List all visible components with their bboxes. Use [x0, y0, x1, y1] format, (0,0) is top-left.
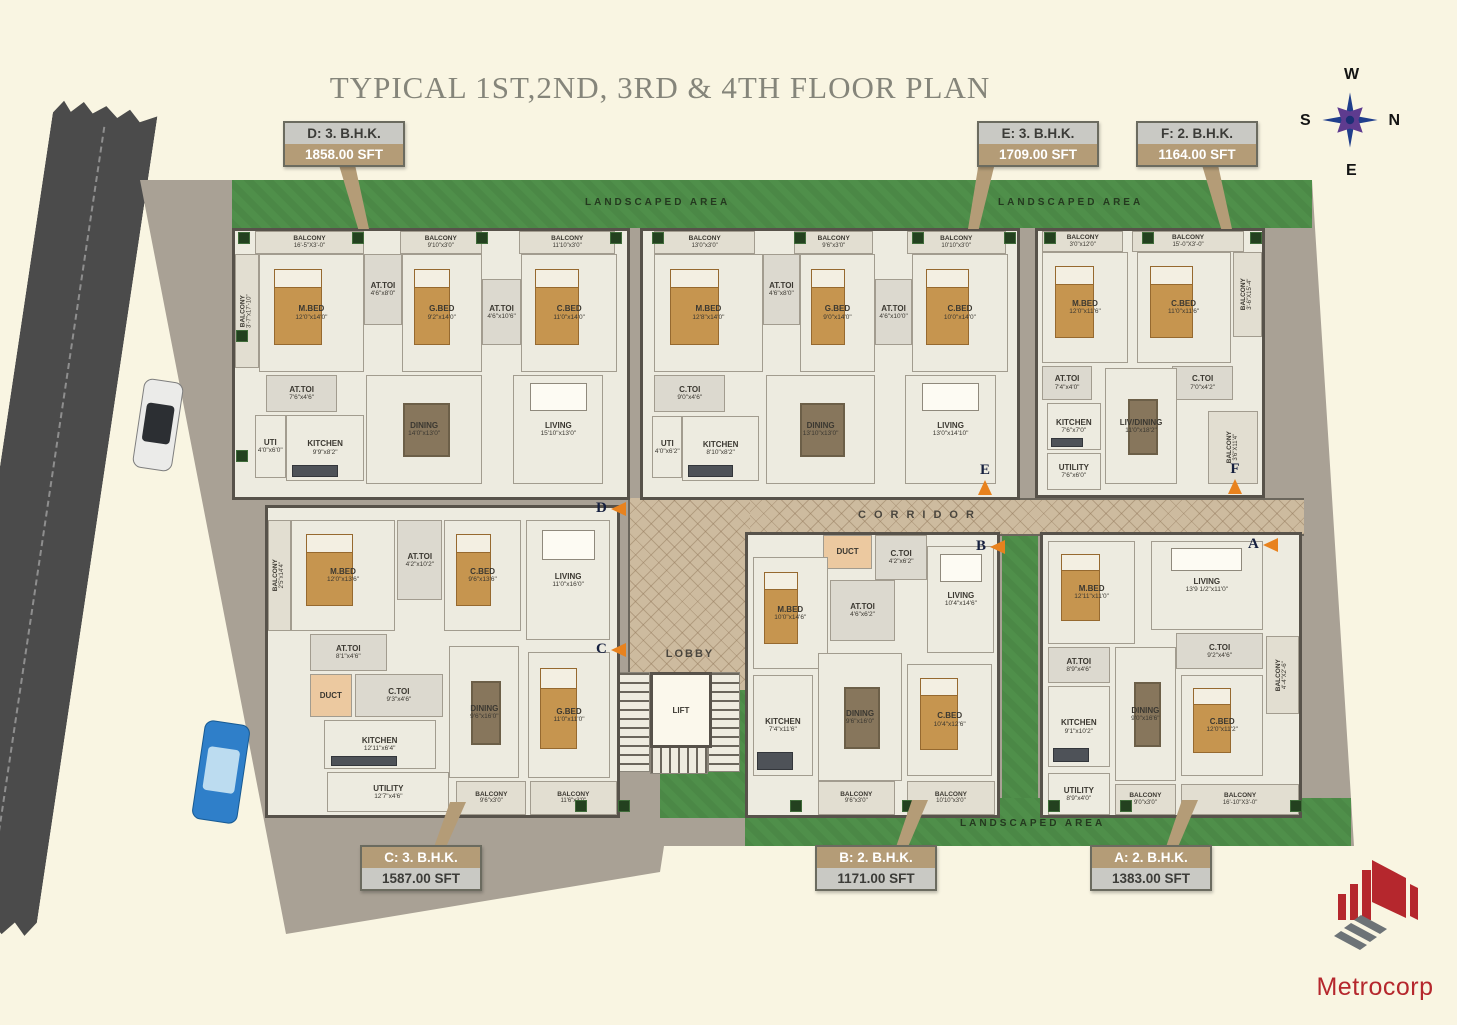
plant-icon — [1142, 232, 1154, 244]
room-balcony: BALCONY16'-5"X3'-0" — [255, 231, 365, 254]
room-balcony: BALCONY4'-4"X2'-6" — [1266, 636, 1299, 714]
landscaped-area-label: LANDSCAPED AREA — [960, 818, 1105, 829]
callout-title: E: 3. B.H.K. — [979, 123, 1097, 144]
room-balcony: BALCONY16'-10"X3'-0" — [1181, 784, 1299, 815]
car-icon — [191, 719, 251, 825]
unit-marker-f: F — [1228, 461, 1242, 494]
plant-icon — [652, 232, 664, 244]
brand-logo: Metrocorp — [1305, 856, 1445, 1016]
room-kitchen: KITCHEN12'11"x6'4" — [324, 720, 436, 769]
room-kitchen: KITCHEN9'1"x10'2" — [1048, 686, 1109, 767]
room-cbed: C.BED12'0"x11'2" — [1181, 675, 1263, 776]
car-roof — [142, 402, 175, 444]
plant-icon — [238, 232, 250, 244]
room-utility: UTI4'0"x6'2" — [652, 416, 682, 479]
room-balcony: BALCONY2'5"x14'4" — [268, 520, 291, 631]
callout-unit-f: F: 2. B.H.K. 1164.00 SFT — [1136, 121, 1258, 167]
metrocorp-logo-icon — [1310, 856, 1440, 966]
room-mbed: M.BED12'8"x14'0" — [654, 254, 762, 372]
room-duct: DUCT — [823, 535, 873, 569]
callout-title: D: 3. B.H.K. — [285, 123, 403, 144]
room-utility: UTI4'0"x6'0" — [255, 415, 286, 479]
callout-title: F: 2. B.H.K. — [1138, 123, 1256, 144]
plant-icon — [236, 330, 248, 342]
unit-marker-b: B — [976, 538, 1005, 555]
compass-west-label: W — [1344, 66, 1359, 84]
room-cbed: C.BED11'0"x14'0" — [521, 254, 617, 372]
room-balcony: BALCONY3'-6"X15'-4" — [1233, 252, 1262, 336]
plant-icon — [476, 232, 488, 244]
room-attoi: AT.TOI7'6"x4'6" — [266, 375, 337, 412]
plant-icon — [912, 232, 924, 244]
plant-icon — [236, 450, 248, 462]
unit-c: BALCONY2'5"x14'4" M.BED12'0"x13'6" AT.TO… — [265, 505, 620, 818]
room-attoi: AT.TOI8'1"x4'6" — [310, 634, 387, 671]
arrow-icon — [611, 502, 626, 516]
room-attoi: AT.TOI4'6"x8'0" — [364, 254, 401, 326]
room-ctoi: C.TOI4'2"x6'2" — [875, 535, 927, 580]
plant-icon — [1120, 800, 1132, 812]
plant-icon — [790, 800, 802, 812]
staircase-left — [618, 672, 650, 772]
room-dining: DINING9'6"x16'0" — [449, 646, 519, 778]
landscaped-area-court-right — [1002, 535, 1038, 798]
arrow-icon — [611, 643, 626, 657]
room-gbed: G.BED11'0"x11'0" — [528, 652, 610, 778]
callout-unit-c: C: 3. B.H.K. 1587.00 SFT — [360, 845, 482, 891]
room-dining: DINING9'0"x16'6" — [1115, 647, 1176, 781]
room-ctoi: C.TOI9'2"x4'6" — [1176, 633, 1263, 669]
room-balcony: BALCONY11'6"x3'0" — [530, 781, 617, 815]
callout-unit-d: D: 3. B.H.K. 1858.00 SFT — [283, 121, 405, 167]
lift-label: LIFT — [673, 706, 690, 715]
page-title: TYPICAL 1ST,2ND, 3RD & 4TH FLOOR PLAN — [310, 70, 1010, 106]
plant-icon — [575, 800, 587, 812]
lobby: LOBBY — [628, 498, 750, 690]
room-cbed: C.BED10'0"x14'0" — [912, 254, 1007, 372]
callout-area: 1171.00 SFT — [817, 868, 935, 889]
landscaped-area-top — [232, 180, 1312, 228]
car-icon — [132, 378, 185, 473]
room-attoi: AT.TOI4'2"x10'2" — [397, 520, 442, 600]
room-utility: UTILITY12'7"x4'6" — [327, 772, 449, 812]
room-cbed: C.BED10'4"x12'6" — [907, 664, 992, 776]
compass-star-icon — [1320, 90, 1380, 150]
callout-area: 1858.00 SFT — [285, 144, 403, 165]
unit-e: BALCONY13'0"x3'0" BALCONY9'6"x3'0" BALCO… — [640, 228, 1020, 500]
corridor-label: CORRIDOR — [858, 509, 982, 521]
callout-title: B: 2. B.H.K. — [817, 847, 935, 868]
room-living: LIVING10'4"x14'6" — [927, 546, 994, 652]
lift: LIFT — [650, 672, 712, 748]
compass-north-label: N — [1388, 112, 1400, 130]
room-balcony: BALCONY3'-7"x17'-10" — [235, 254, 259, 368]
arrow-icon — [1228, 479, 1242, 494]
compass-east-label: E — [1346, 162, 1357, 180]
room-gbed: G.BED9'0"x14'0" — [800, 254, 875, 372]
room-mbed: M.BED12'0"x11'6" — [1042, 252, 1127, 363]
room-kitchen: KITCHEN7'6"x7'0" — [1047, 403, 1101, 451]
room-gbed: G.BED9'2"x14'0" — [402, 254, 482, 372]
landscaped-area-label: LANDSCAPED AREA — [998, 197, 1143, 208]
room-dining: DINING14'0"x13'0" — [366, 375, 482, 484]
room-living: LIVING13'9 1/2"x11'0" — [1151, 541, 1264, 631]
unit-marker-d: D — [596, 500, 626, 517]
room-ctoi: C.TOI9'3"x4'6" — [355, 674, 442, 717]
room-mbed: M.BED12'11"x11'0" — [1048, 541, 1135, 645]
room-kitchen: KITCHEN9'9"x8'2" — [286, 415, 364, 482]
landscaped-area-label: LANDSCAPED AREA — [585, 197, 730, 208]
room-mbed: M.BED12'0"x13'6" — [291, 520, 396, 631]
plant-icon — [1044, 232, 1056, 244]
unit-marker-c: C — [596, 641, 626, 658]
arrow-icon — [978, 480, 992, 495]
callout-area: 1587.00 SFT — [362, 868, 480, 889]
unit-marker-a: A — [1248, 536, 1278, 553]
room-livdining: LIV/DINING11'0"x18'2" — [1105, 368, 1177, 484]
arrow-icon — [990, 540, 1005, 554]
room-balcony: BALCONY9'6"x3'0" — [794, 231, 873, 254]
unit-b: DUCT C.TOI4'2"x6'2" AT.TOI4'6"x6'2" LIVI… — [745, 532, 1000, 818]
floor-plan-canvas: TYPICAL 1ST,2ND, 3RD & 4TH FLOOR PLAN W … — [0, 0, 1457, 1025]
plant-icon — [794, 232, 806, 244]
room-cbed: C.BED9'6"x13'6" — [444, 520, 521, 631]
staircase-bottom — [650, 744, 708, 774]
room-kitchen: KITCHEN8'10"x8'2" — [682, 416, 759, 481]
callout-title: A: 2. B.H.K. — [1092, 847, 1210, 868]
brand-name: Metrocorp — [1305, 973, 1445, 1002]
lobby-label: LOBBY — [630, 648, 750, 660]
room-duct: DUCT — [310, 674, 352, 717]
room-mbed: M.BED10'0"x14'6" — [753, 557, 828, 669]
callout-area: 1164.00 SFT — [1138, 144, 1256, 165]
road — [0, 94, 158, 942]
plant-icon — [1048, 800, 1060, 812]
room-mbed: M.BED12'0"x14'0" — [259, 254, 365, 372]
plant-icon — [610, 232, 622, 244]
room-attoi: AT.TOI7'4"x4'0" — [1042, 366, 1091, 400]
room-balcony: BALCONY13'0"x3'0" — [654, 231, 755, 254]
room-attoi: AT.TOI8'9"x4'6" — [1048, 647, 1109, 683]
callout-area: 1709.00 SFT — [979, 144, 1097, 165]
unit-d: BALCONY16'-5"X3'-0" BALCONY9'10"x3'0" BA… — [232, 228, 630, 500]
plant-icon — [1290, 800, 1302, 812]
room-cbed: C.BED11'0"x11'6" — [1137, 252, 1231, 363]
room-ctoi: C.TOI7'0"x4'2" — [1172, 366, 1232, 400]
callout-title: C: 3. B.H.K. — [362, 847, 480, 868]
callout-area: 1383.00 SFT — [1092, 868, 1210, 889]
plant-icon — [1250, 232, 1262, 244]
room-dining: DINING13'10"x13'0" — [766, 375, 874, 484]
room-balcony: BALCONY9'6"x3'0" — [818, 781, 895, 815]
plant-icon — [618, 800, 630, 812]
unit-marker-e: E — [978, 462, 992, 495]
room-balcony: BALCONY11'10"x3'0" — [519, 231, 615, 254]
car-roof — [202, 746, 240, 793]
room-dining: DINING9'6"x16'0" — [818, 653, 903, 782]
plant-icon — [352, 232, 364, 244]
unit-a: M.BED12'11"x11'0" LIVING13'9 1/2"x11'0" … — [1040, 532, 1302, 818]
callout-unit-a: A: 2. B.H.K. 1383.00 SFT — [1090, 845, 1212, 891]
room-attoi: AT.TOI4'6"x10'6" — [482, 279, 521, 346]
room-living: LIVING11'0"x16'0" — [526, 520, 610, 640]
compass-south-label: S — [1300, 112, 1311, 130]
room-balcony: BALCONY9'6"x3'0" — [456, 781, 526, 815]
plant-icon — [1004, 232, 1016, 244]
room-attoi: AT.TOI4'6"x10'0" — [875, 279, 912, 346]
callout-unit-b: B: 2. B.H.K. 1171.00 SFT — [815, 845, 937, 891]
room-attoi: AT.TOI4'6"x8'0" — [763, 254, 800, 326]
compass-rose: W S N E — [1298, 64, 1402, 182]
room-utility: UTILITY7'6"x6'0" — [1047, 453, 1101, 490]
arrow-icon — [1263, 538, 1278, 552]
callout-unit-e: E: 3. B.H.K. 1709.00 SFT — [977, 121, 1099, 167]
room-living: LIVING15'10"x13'0" — [513, 375, 603, 484]
unit-f: BALCONY3'0"x12'0" BALCONY15'-0"X3'-0" BA… — [1035, 228, 1265, 498]
staircase-right — [708, 672, 740, 772]
room-balcony: BALCONY9'10"x3'0" — [400, 231, 482, 254]
room-ctoi: C.TOI9'0"x4'6" — [654, 375, 725, 412]
room-attoi: AT.TOI4'6"x6'2" — [830, 580, 895, 642]
room-kitchen: KITCHEN7'4"x11'6" — [753, 675, 813, 776]
